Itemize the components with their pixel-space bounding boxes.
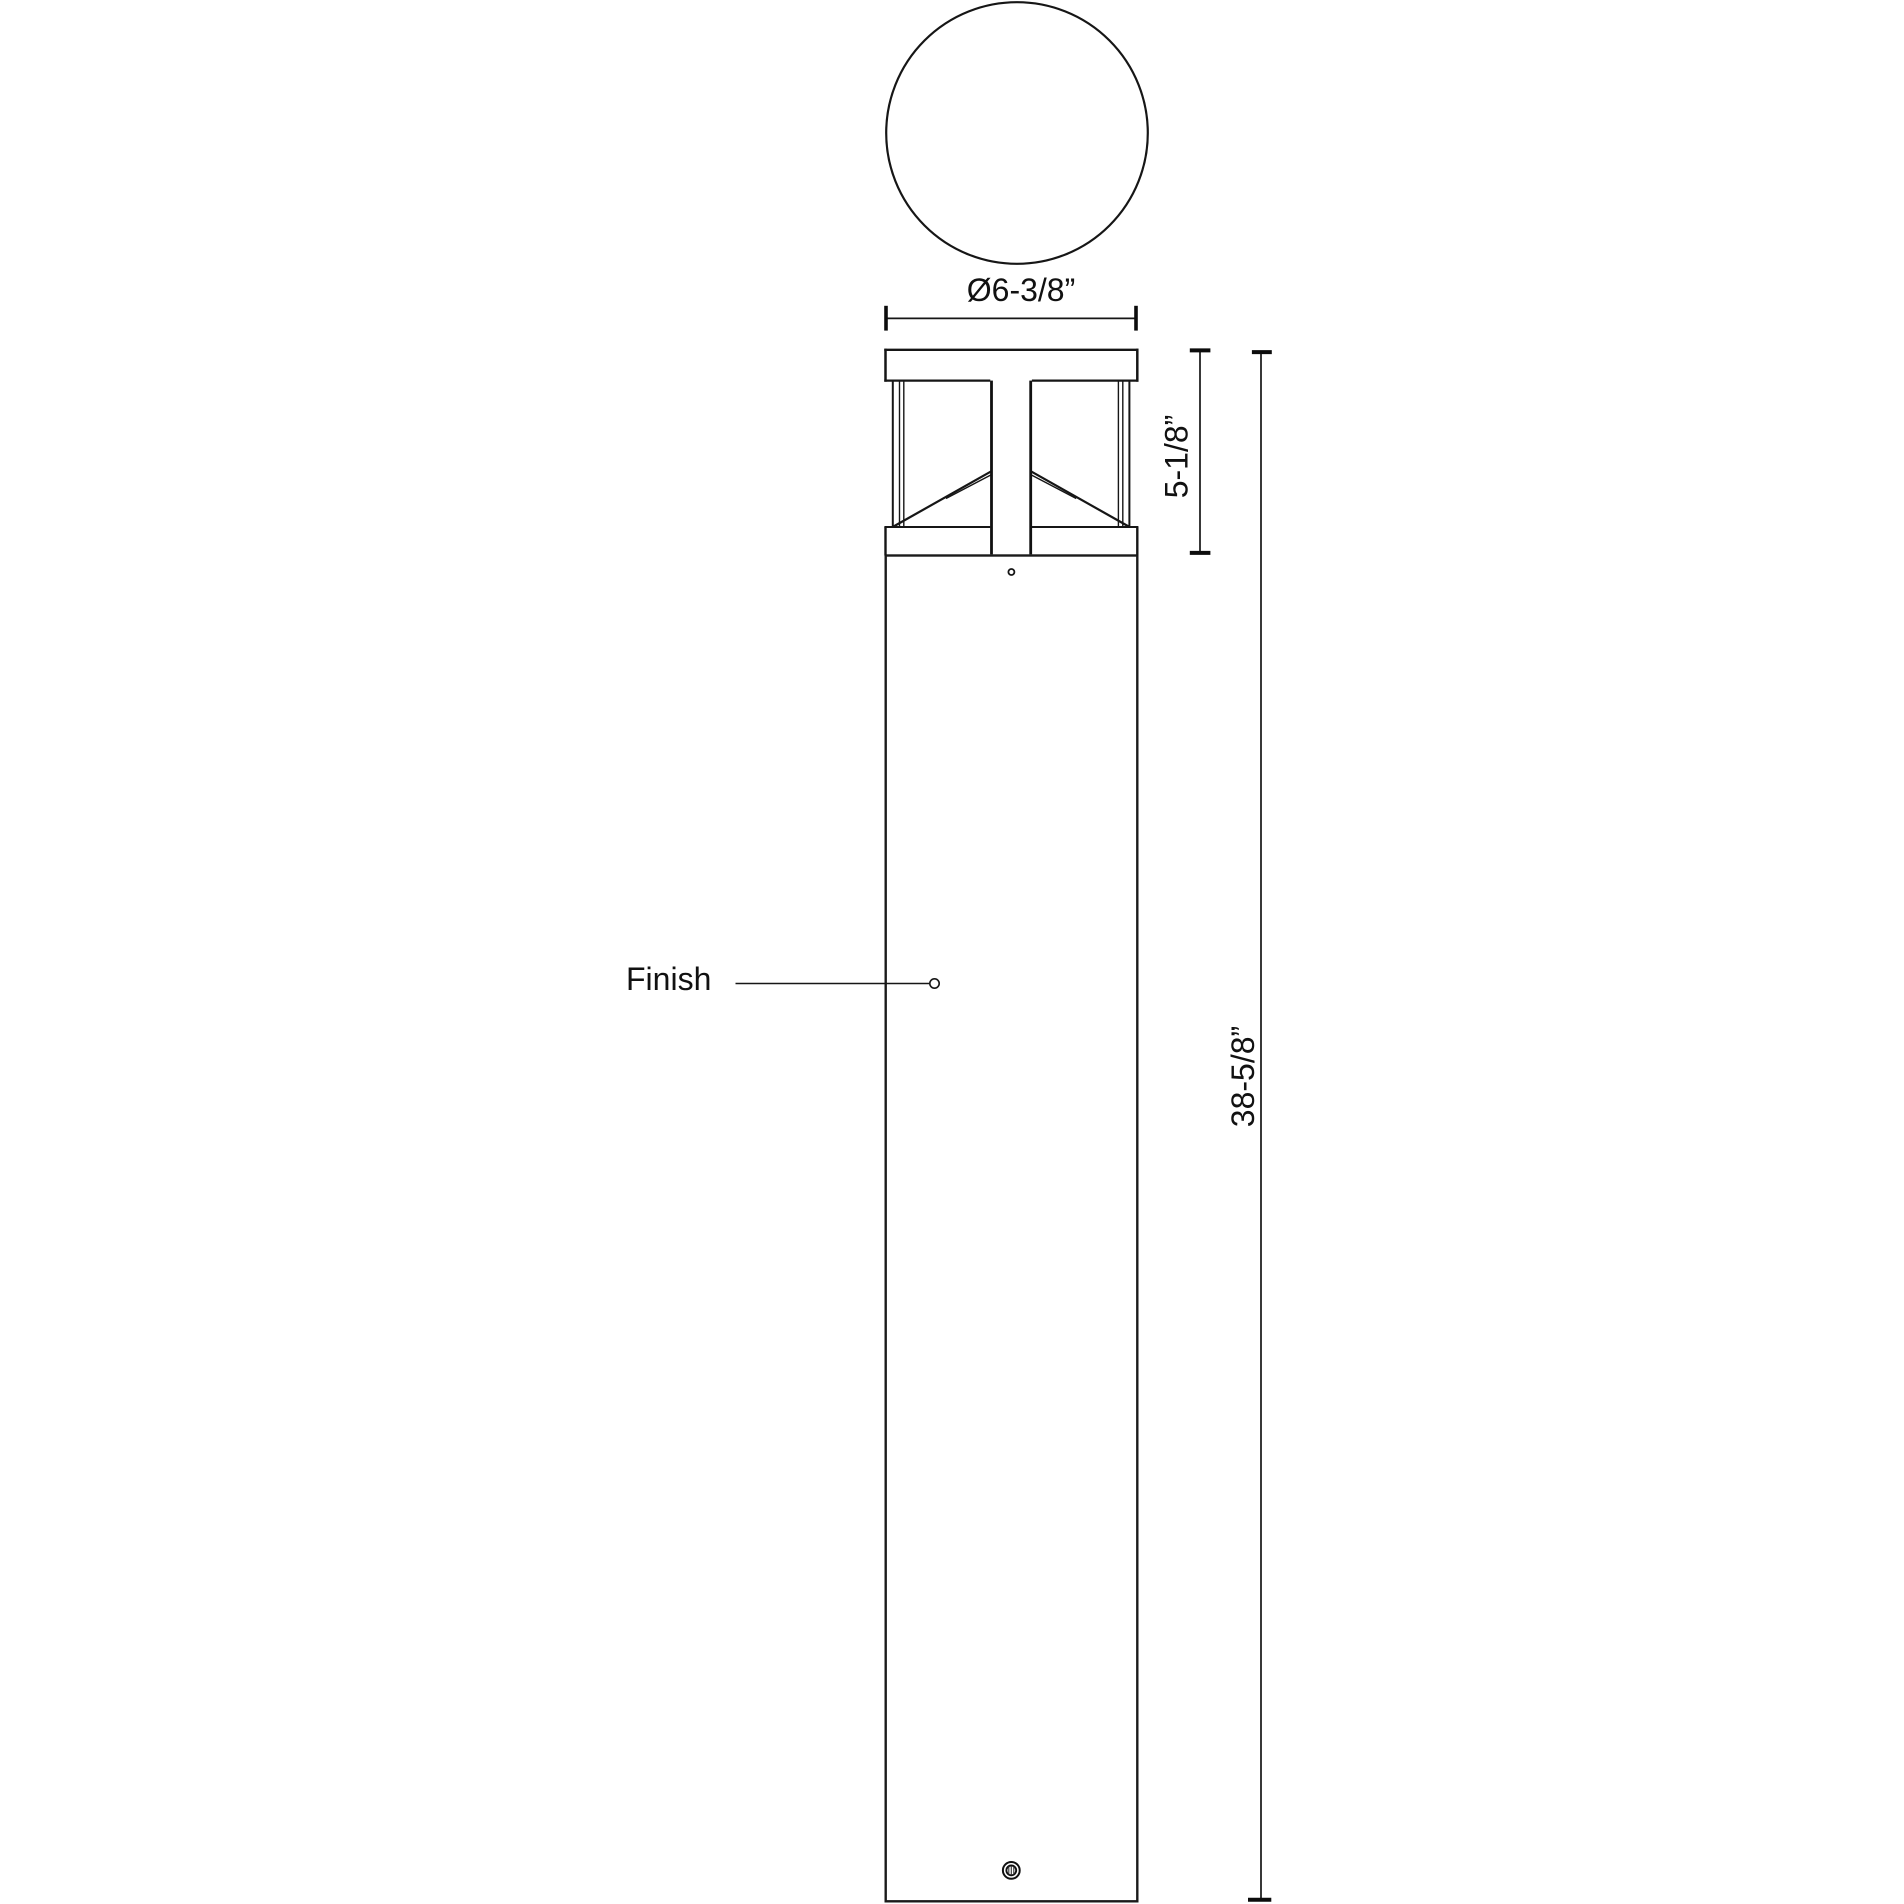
svg-text:Finish: Finish — [626, 961, 711, 997]
svg-text:Ø6-3/8”: Ø6-3/8” — [967, 272, 1075, 308]
svg-text:5-1/8”: 5-1/8” — [1159, 415, 1195, 499]
svg-text:38-5/8”: 38-5/8” — [1225, 1026, 1261, 1127]
